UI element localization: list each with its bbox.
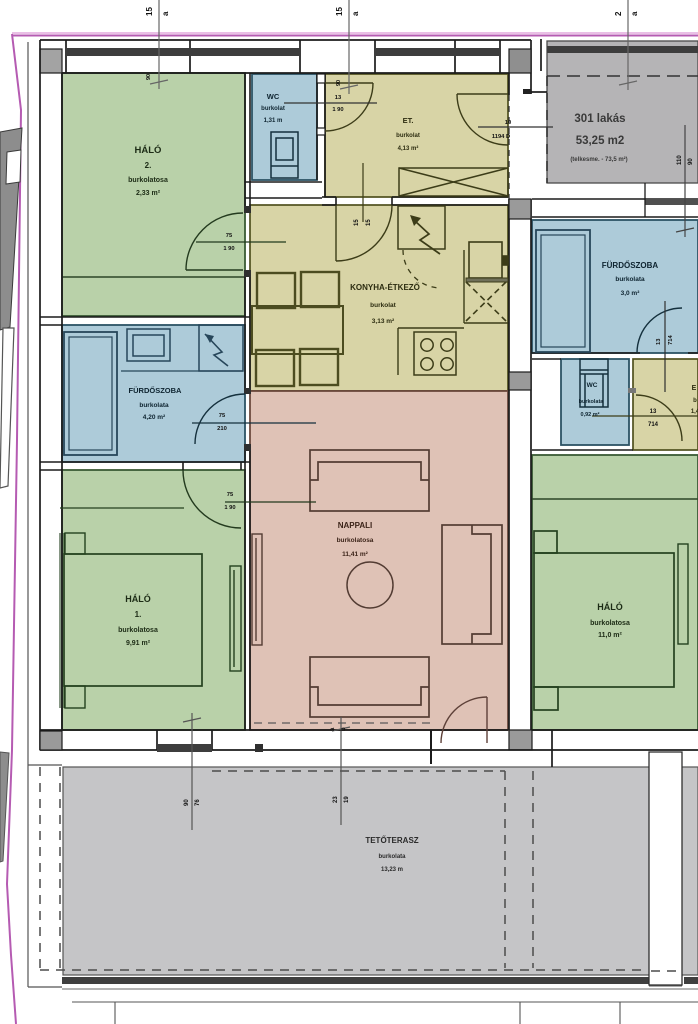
svg-text:1 90: 1 90 (224, 505, 235, 511)
svg-text:burkolata: burkolata (139, 402, 169, 409)
svg-text:11,41 m²: 11,41 m² (342, 551, 368, 558)
svg-text:1194 D: 1194 D (492, 134, 510, 140)
svg-text:1,31 m: 1,31 m (264, 118, 283, 124)
svg-text:a: a (161, 11, 170, 16)
svg-text:714: 714 (648, 422, 659, 428)
svg-text:13: 13 (335, 95, 342, 101)
svg-text:13: 13 (656, 338, 662, 345)
svg-text:90: 90 (184, 799, 190, 806)
svg-text:4,13 m²: 4,13 m² (398, 145, 419, 152)
svg-text:13: 13 (650, 409, 657, 415)
svg-text:ET.: ET. (403, 116, 414, 125)
svg-text:13,23 m: 13,23 m (381, 867, 403, 873)
svg-text:b: b (693, 398, 697, 404)
svg-text:15: 15 (145, 7, 154, 16)
svg-text:90: 90 (146, 74, 152, 80)
svg-text:15: 15 (354, 219, 360, 226)
svg-text:53,25 m2: 53,25 m2 (576, 135, 625, 147)
svg-text:3,0 m²: 3,0 m² (621, 290, 641, 297)
svg-text:burkolata: burkolata (378, 854, 406, 860)
svg-text:301 lakás: 301 lakás (574, 113, 625, 125)
svg-text:burkolat: burkolat (370, 302, 396, 309)
svg-text:E: E (692, 385, 697, 392)
svg-text:19: 19 (344, 796, 350, 803)
svg-text:90: 90 (336, 80, 342, 86)
svg-text:10: 10 (505, 120, 511, 126)
svg-text:KONYHA-ÉTKEZŐ: KONYHA-ÉTKEZŐ (350, 283, 420, 292)
svg-text:4,20 m²: 4,20 m² (143, 414, 166, 421)
svg-text:23: 23 (333, 796, 339, 803)
svg-text:714: 714 (668, 335, 674, 345)
svg-text:1.: 1. (135, 610, 142, 619)
svg-text:3,13 m²: 3,13 m² (372, 318, 395, 325)
svg-text:WC: WC (267, 92, 280, 101)
svg-text:burkolat: burkolat (261, 106, 285, 112)
svg-text:2,33 m²: 2,33 m² (136, 190, 161, 197)
svg-text:burkolatosa: burkolatosa (590, 620, 630, 627)
svg-text:burkolata: burkolata (615, 276, 645, 283)
svg-text:burkolatosa: burkolatosa (118, 627, 158, 634)
svg-text:75: 75 (227, 492, 234, 498)
svg-text:b: b (341, 727, 347, 731)
svg-text:110: 110 (677, 155, 683, 165)
svg-text:burkolatosa: burkolatosa (337, 537, 374, 544)
svg-text:burkolatosa: burkolatosa (128, 177, 168, 184)
svg-text:HÁLÓ: HÁLÓ (597, 601, 623, 612)
svg-text:0,92 m²: 0,92 m² (581, 411, 600, 418)
svg-text:1 90: 1 90 (223, 246, 234, 252)
svg-text:HÁLÓ: HÁLÓ (135, 144, 162, 156)
svg-text:76: 76 (195, 799, 201, 806)
svg-text:FÜRDŐSZOBA: FÜRDŐSZOBA (129, 386, 182, 395)
svg-text:(telkesme. - 73,5 m²): (telkesme. - 73,5 m²) (570, 156, 627, 163)
svg-text:2: 2 (614, 11, 623, 16)
svg-text:HÁLÓ: HÁLÓ (125, 593, 151, 604)
svg-text:WC: WC (587, 382, 598, 389)
svg-text:NAPPALI: NAPPALI (338, 521, 373, 530)
svg-text:1,4: 1,4 (691, 409, 698, 415)
svg-text:210: 210 (217, 426, 227, 432)
svg-text:a: a (630, 11, 639, 16)
svg-text:burkolat: burkolat (396, 133, 420, 139)
svg-text:1 90: 1 90 (332, 107, 343, 113)
svg-text:2.: 2. (145, 161, 152, 170)
svg-text:FÜRDŐSZOBA: FÜRDŐSZOBA (602, 261, 659, 270)
svg-text:15: 15 (366, 219, 372, 226)
svg-text:75: 75 (226, 233, 233, 239)
svg-text:90: 90 (688, 158, 694, 165)
svg-text:11,0 m²: 11,0 m² (598, 632, 622, 639)
svg-text:15: 15 (335, 7, 344, 16)
svg-text:TETŐTERASZ: TETŐTERASZ (365, 836, 418, 845)
svg-text:a: a (351, 11, 360, 16)
svg-text:9,91 m²: 9,91 m² (126, 640, 151, 647)
svg-text:75: 75 (219, 413, 226, 419)
svg-text:burkolata: burkolata (579, 399, 605, 405)
